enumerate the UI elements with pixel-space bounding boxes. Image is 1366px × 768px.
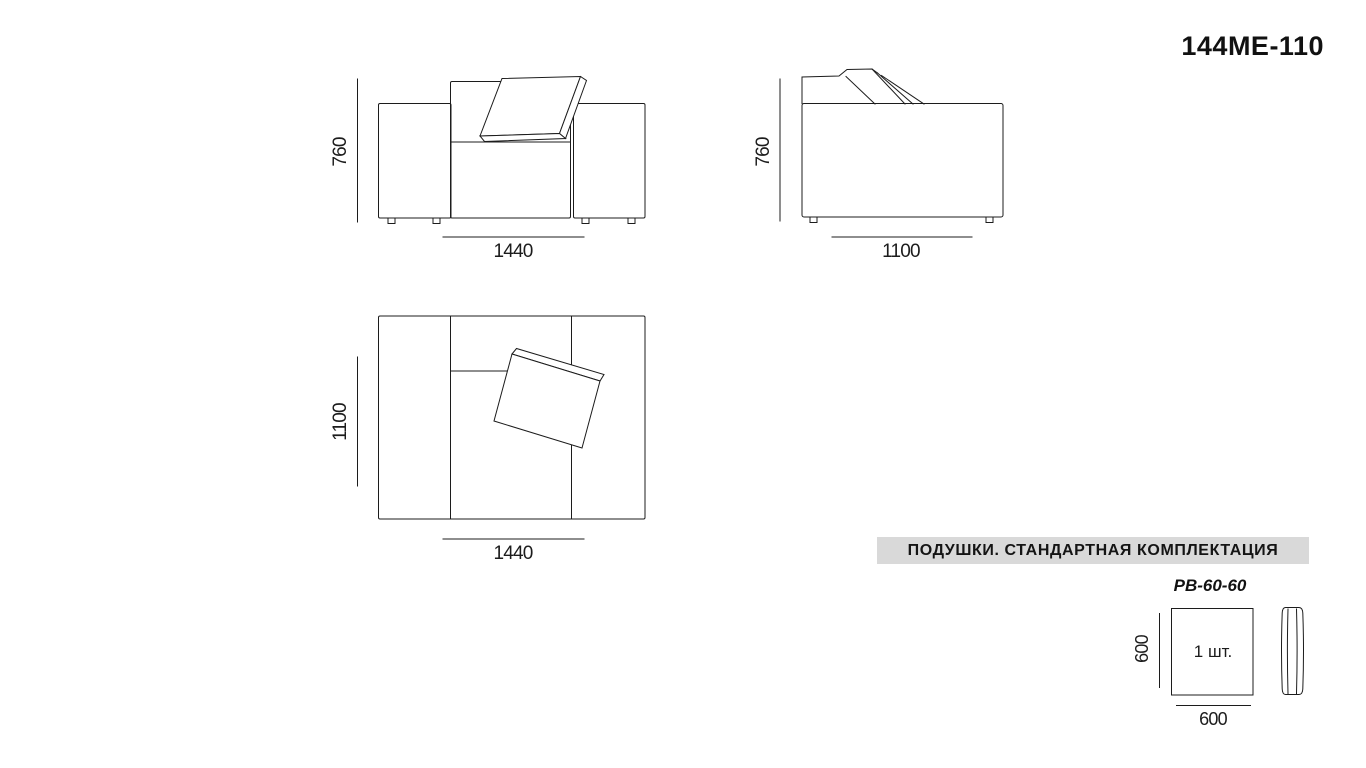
catalog-page: 144МЕ-110 760 1440 760 1100 1100 1440 ПО…: [0, 0, 1366, 768]
front-right-armrest: [574, 104, 646, 219]
front-foot: [582, 218, 589, 224]
side-view-drawing: [780, 69, 1003, 237]
top-view-drawing: [358, 316, 646, 539]
cushion-height-label: 600: [1132, 619, 1152, 679]
cushion-model-label: РВ-60-60: [1140, 575, 1280, 597]
side-cushion-edge: [846, 77, 875, 105]
side-backrest-profile: [802, 69, 878, 104]
side-foot: [986, 217, 993, 223]
front-view-drawing: [358, 77, 646, 238]
cushion-width-label: 600: [1183, 709, 1243, 729]
side-height-label: 760: [753, 117, 775, 187]
top-width-label: 1440: [478, 543, 548, 565]
front-foot: [388, 218, 395, 224]
side-cushion-edge: [872, 69, 905, 104]
technical-drawing-svg: [0, 0, 1366, 768]
front-foot: [433, 218, 440, 224]
cushions-section-header: ПОДУШКИ. СТАНДАРТНАЯ КОМПЛЕКТАЦИЯ: [877, 537, 1309, 564]
side-width-label: 1100: [866, 241, 936, 263]
front-width-label: 1440: [478, 241, 548, 263]
page-title: 144МЕ-110: [1181, 30, 1324, 62]
side-body: [802, 104, 1003, 218]
side-cushion-edge: [882, 76, 925, 105]
front-height-label: 760: [330, 117, 352, 187]
cushion-quantity-label: 1 шт.: [1173, 641, 1253, 663]
side-cushion-edge: [878, 73, 914, 104]
side-foot: [810, 217, 817, 223]
top-height-label: 1100: [330, 387, 352, 457]
cushion-side-profile: [1282, 608, 1304, 695]
front-left-armrest: [379, 104, 452, 219]
front-foot: [628, 218, 635, 224]
